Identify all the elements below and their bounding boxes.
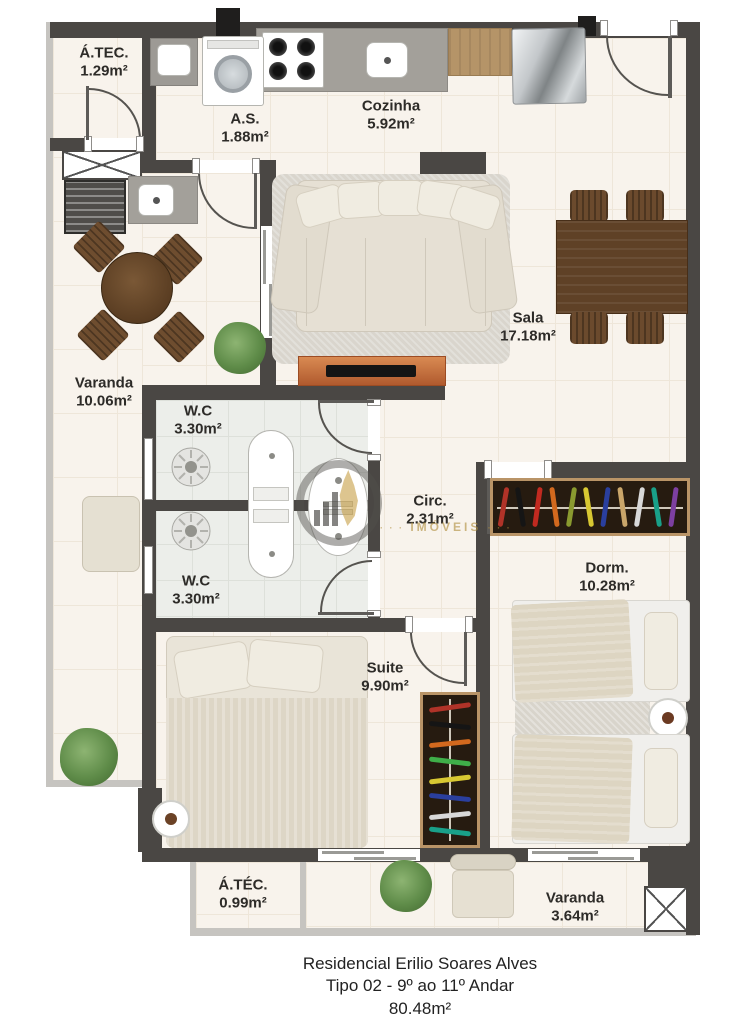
kitchen-door-opening [196, 160, 256, 173]
window-pane [322, 851, 384, 854]
room-label-varanda: Varanda 10.06m² [75, 374, 133, 409]
suite-side-table [152, 800, 190, 838]
room-label-wc1: W.C 3.30m² [174, 402, 222, 437]
dorm-nightstand [648, 698, 688, 738]
dining-table [556, 220, 688, 314]
suite-door-opening [409, 618, 467, 632]
watermark-word: IMÓVEIS [410, 520, 481, 534]
shaft-crossed-box [644, 886, 688, 932]
tv-icon [326, 365, 416, 377]
wall-varanda-wc [142, 398, 156, 632]
door-frame [544, 460, 552, 479]
watermark-bar-icon [323, 502, 329, 526]
wall-pillar-top [216, 8, 240, 38]
watermark-bar-icon [332, 492, 338, 526]
railing-bottom [190, 928, 696, 936]
dorm-rug [515, 702, 650, 734]
plant-icon [214, 322, 266, 374]
varanda-chair-seat [452, 870, 514, 918]
wc2-window [144, 546, 153, 594]
tank-basin [157, 44, 191, 76]
plant-icon [380, 860, 432, 912]
room-label-wc2: W.C 3.30m² [172, 572, 220, 607]
entrance-door-leaf [668, 36, 672, 98]
room-name: A.S. [221, 110, 269, 128]
room-area: 3.64m² [546, 907, 604, 925]
door-frame [252, 158, 260, 174]
window-pane [568, 857, 634, 860]
room-area: 5.92m² [362, 115, 420, 133]
varanda-cushion-seat [82, 496, 140, 572]
room-name: W.C [174, 402, 222, 420]
bed-pillow [644, 748, 678, 828]
room-label-varanda-bottom: Varanda 3.64m² [546, 889, 604, 924]
room-area: 0.99m² [218, 894, 267, 912]
kitchen-cabinet [448, 28, 512, 76]
wall-wc-top [142, 385, 445, 400]
room-label-atec-bottom: Á.TÉC. 0.99m² [218, 876, 267, 911]
room-label-suite: Suite 9.90m² [361, 659, 409, 694]
room-name: Varanda [546, 889, 604, 907]
wc1-door-leaf [318, 400, 374, 403]
room-label-sala: Sala 17.18m² [500, 309, 556, 344]
room-name: Á.TEC. [79, 44, 128, 62]
kitchen-door-leaf [254, 173, 257, 229]
room-area: 3.30m² [174, 420, 222, 438]
toilet-tank [253, 487, 289, 501]
sofa-seat-line [306, 238, 486, 326]
watermark-bar-icon [314, 510, 320, 526]
drain-dot [153, 197, 160, 204]
washing-machine-icon [202, 36, 264, 106]
wall-pillar-bottom-right [648, 846, 688, 890]
shower-icon [168, 444, 214, 490]
room-name: Varanda [75, 374, 133, 392]
flush-dot [269, 551, 275, 557]
room-name: Sala [500, 309, 556, 327]
dining-chair [626, 190, 664, 222]
railing-left [46, 22, 53, 786]
wc1-window [144, 438, 153, 500]
watermark-dots: · · · [380, 523, 404, 533]
entrance-opening [604, 20, 676, 36]
room-area: 10.28m² [579, 577, 635, 595]
toilet-pair-icon [248, 430, 294, 578]
footer-total-area: 80.48m² [120, 998, 720, 1020]
flush-dot [269, 453, 275, 459]
table-center-dot [165, 813, 177, 825]
plan-footer: Residencial Erilio Soares Alves Tipo 02 … [120, 953, 720, 1020]
room-label-cozinha: Cozinha 5.92m² [362, 97, 420, 132]
watermark-dots: · · · [488, 523, 512, 533]
wc2-door-leaf [318, 612, 374, 615]
room-area: 3.30m² [172, 590, 220, 608]
room-area: 17.18m² [500, 327, 556, 345]
dorm-wardrobe [490, 478, 690, 536]
window-pane [532, 851, 598, 854]
varanda-chair-back [450, 854, 516, 870]
watermark-ring-icon [296, 460, 382, 546]
room-area: 10.06m² [75, 392, 133, 410]
drum-circle [214, 55, 252, 93]
dorm-blanket-2 [511, 734, 633, 844]
kitchen-sink-icon [366, 42, 408, 78]
footer-title: Residencial Erilio Soares Alves [120, 953, 720, 975]
door-frame [465, 616, 473, 633]
room-name: Dorm. [579, 559, 635, 577]
suite-door-leaf [464, 632, 467, 686]
watermark-text: · · · IMÓVEIS · · · [380, 520, 502, 534]
room-label-as: A.S. 1.88m² [221, 110, 269, 145]
toilet-tank [253, 509, 289, 523]
door-frame [192, 158, 200, 174]
door-frame [136, 136, 144, 152]
closet-rail [449, 699, 451, 841]
laundry-tank-icon [150, 38, 198, 86]
footer-type-floors: Tipo 02 - 9º ao 11º Andar [120, 975, 720, 997]
shower-icon [168, 508, 214, 554]
bed-pillow [246, 638, 325, 693]
railing-atec2-left [190, 862, 196, 936]
burner-icon [269, 38, 287, 56]
round-table [101, 252, 173, 324]
room-name: W.C [172, 572, 220, 590]
table-center-dot [662, 712, 674, 724]
stove-icon [262, 32, 324, 88]
door-frame [600, 20, 608, 36]
control-panel [207, 40, 259, 49]
dining-chair [570, 190, 608, 222]
atec-door-leaf [86, 86, 89, 140]
plant-icon [60, 728, 118, 786]
room-name: Á.TÉC. [218, 876, 267, 894]
bed-pillow [644, 612, 678, 690]
door-frame [670, 20, 678, 36]
drain-dot [384, 57, 391, 64]
suite-blanket [166, 698, 368, 848]
agency-watermark: · · · IMÓVEIS · · · [292, 458, 502, 554]
suite-closet [420, 692, 480, 848]
dining-chair [626, 312, 664, 344]
varanda-sink-icon [138, 184, 174, 216]
railing-atec2-divider [300, 862, 306, 936]
room-name: Cozinha [362, 97, 420, 115]
burner-icon [297, 62, 315, 80]
fridge-icon [511, 27, 586, 104]
room-label-atec-top: Á.TEC. 1.29m² [79, 44, 128, 79]
dining-chair [570, 312, 608, 344]
glass-pane [263, 230, 266, 284]
burner-icon [269, 62, 287, 80]
room-area: 1.88m² [221, 128, 269, 146]
floor-plan-page: Á.TEC. 1.29m² A.S. 1.88m² Cozinha 5.92m²… [0, 0, 734, 1024]
room-area: 1.29m² [79, 62, 128, 80]
door-frame [405, 616, 413, 633]
room-label-dorm: Dorm. 10.28m² [579, 559, 635, 594]
burner-icon [297, 38, 315, 56]
dorm-blanket-1 [511, 599, 634, 703]
room-area: 9.90m² [361, 677, 409, 695]
room-name: Suite [361, 659, 409, 677]
